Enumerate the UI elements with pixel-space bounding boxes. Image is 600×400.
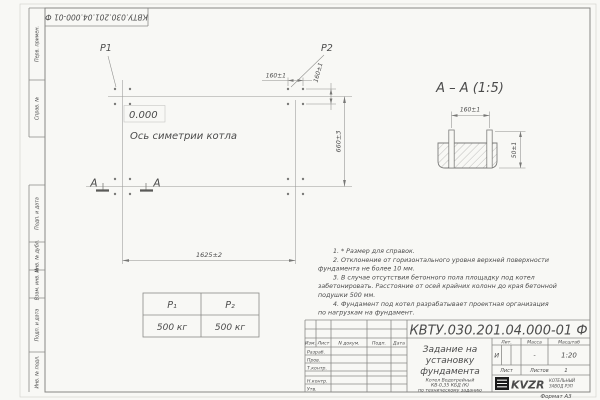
section-dim-embed-depth: 50±1: [511, 142, 518, 158]
section-bolt-right: [487, 130, 492, 168]
row-label-utv: Утв.: [307, 387, 317, 393]
col-header-list: Лист: [317, 341, 330, 347]
product-line3: по техническому заданию: [418, 389, 482, 394]
plan-axis-label: Ось симетрии котла: [130, 131, 237, 142]
kvzr-logo-text: KVZR: [511, 379, 544, 392]
mass-header: Масса: [527, 340, 542, 346]
plan-dim-bolt-v: 160±1: [313, 62, 325, 83]
plan-elevation-label: 0.000: [129, 110, 158, 121]
plan-point1-label: P1: [100, 43, 112, 54]
notes-block: 1. * Размер для справок. 2. Отклонение о…: [318, 248, 557, 317]
strip-label-podp-i-data-2: Подп. и дата: [35, 309, 41, 342]
side-strip: Перв. примен. Справ. № Подп. и дата Инв.…: [29, 8, 45, 392]
format-label: Формат А3: [540, 394, 572, 400]
doc-title-line2: установку: [425, 356, 475, 366]
strip-label-vzam-inv-n: Взам. инв. №: [35, 268, 41, 301]
note-line-2: 2. Отклонение от горизонтального уровня …: [333, 257, 549, 264]
row-label-razrab: Разраб.: [307, 350, 325, 356]
mass-value: -: [533, 351, 536, 359]
title-block: КВТУ.030.201.04.000-01 Ф Изм. Лист N док…: [305, 320, 590, 394]
load-table-header-p1: P₁: [167, 300, 177, 311]
note-line-8: по нагрузкам на фундамент.: [318, 310, 415, 317]
note-line-1: 1. * Размер для справок.: [333, 248, 415, 255]
drawing-sheet: КВТУ.030.201.04.000-01 Ф Перв. примен. С…: [0, 0, 600, 400]
note-line-6: подушки 500 мм.: [318, 292, 375, 299]
corner-stamp: КВТУ.030.201.04.000-01 Ф: [45, 8, 148, 26]
plan-dim-bolt-h: 160±1: [266, 73, 286, 80]
section-cut-marks: А А: [89, 178, 160, 191]
section-dim-bolt-spacing: 160±1: [460, 107, 480, 114]
plan-dimensions: 160±1 160±1 660±3 1625±2: [123, 62, 346, 262]
row-label-nkontr: Н.контр.: [307, 379, 328, 385]
sheets-label: Листов: [529, 368, 549, 374]
section-view: А – А (1:5) 160±1 50±1: [435, 81, 525, 168]
plan-point2-label: P2: [321, 43, 333, 54]
note-line-3: фундамента не более 10 мм.: [318, 265, 415, 273]
strip-label-perv-primen: Перв. примен.: [35, 26, 41, 62]
org-line2: ЗАВОД РЭП: [549, 384, 573, 389]
title-block-designation: КВТУ.030.201.04.000-01 Ф: [409, 324, 587, 339]
doc-title-line1: Задание на: [423, 345, 478, 355]
note-line-4: 3. В случае отсутствия бетонного пола пл…: [333, 273, 535, 281]
sheet-label: Лист: [499, 368, 514, 374]
load-table: P₁ P₂ 500 кг 500 кг: [143, 293, 259, 337]
load-table-value-p2: 500 кг: [215, 323, 245, 333]
col-header-sign: Подп.: [372, 341, 386, 347]
lit-header: Лит.: [500, 340, 512, 346]
col-header-doc: N докум.: [338, 341, 359, 347]
plan-view: P1 P2 0.000 Ось симетрии котла А А: [86, 43, 352, 264]
kvzr-logo: KVZR КОТЕЛЬНЫЙ ЗАВОД РЭП: [495, 377, 575, 392]
drawing-canvas: КВТУ.030.201.04.000-01 Ф Перв. примен. С…: [0, 0, 600, 400]
row-label-prov: Пров.: [307, 358, 320, 364]
plan-dim-length: 1625±2: [196, 251, 222, 259]
strip-label-inv-n-podl: Инв. № подл.: [35, 355, 41, 388]
scale-header: Масштаб: [558, 340, 580, 346]
scale-value: 1:20: [561, 352, 577, 360]
col-header-izm: Изм.: [305, 341, 316, 347]
section-title: А – А (1:5): [435, 81, 504, 96]
section-letter-left: А: [89, 178, 97, 190]
section-letter-right: А: [152, 178, 160, 190]
plan-dim-width: 660±3: [335, 131, 343, 153]
org-line1: КОТЕЛЬНЫЙ: [549, 378, 575, 383]
col-header-date: Дата: [392, 341, 405, 347]
load-table-header-p2: P₂: [225, 300, 235, 311]
sheets-value: 1: [564, 368, 568, 374]
doc-title-line3: фундамента: [420, 367, 480, 377]
section-bolt-left: [449, 130, 454, 168]
load-table-value-p1: 500 кг: [157, 323, 187, 333]
corner-stamp-designation: КВТУ.030.201.04.000-01 Ф: [45, 13, 148, 22]
strip-label-podp-i-data-1: Подп. и дата: [35, 197, 41, 230]
strip-label-sprav-n: Справ. №: [35, 97, 41, 120]
note-line-5: забетонировать. Расстояние от осей крайн…: [318, 282, 557, 290]
strip-label-inv-n-dubl: Инв. № дубл.: [35, 240, 41, 273]
lit-value: И: [494, 352, 499, 360]
note-line-7: 4. Фундамент под котел разрабатывает про…: [333, 300, 549, 308]
row-label-tkontr: Т.контр.: [307, 366, 327, 372]
